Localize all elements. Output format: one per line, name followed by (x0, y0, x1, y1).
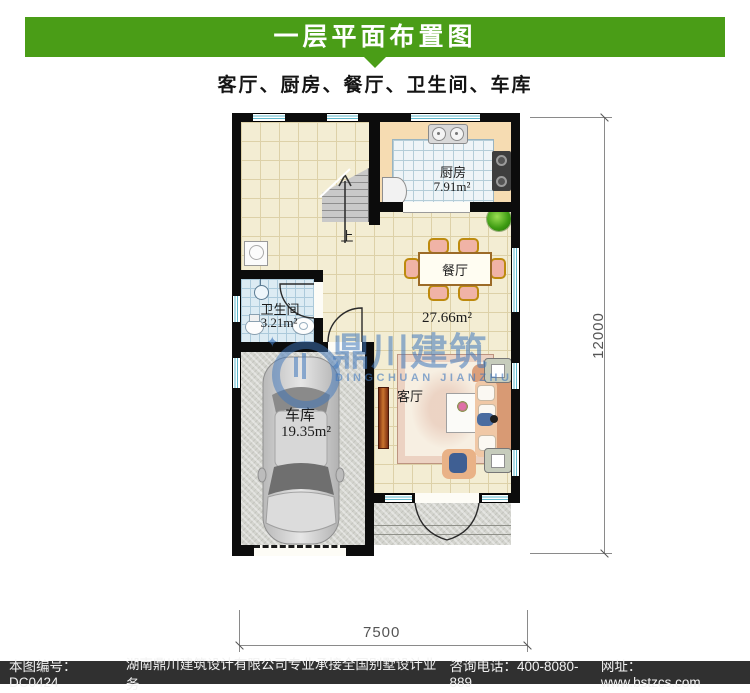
garage-area-label: 19.35m² (281, 424, 331, 441)
stairs-up-label: 上 (340, 226, 353, 245)
door-swing-arcs (232, 113, 520, 556)
footer-bar: 本图编号：DC0424 湖南鼎川建筑设计有限公司专业承接全国别墅设计业务 咨询电… (0, 661, 750, 684)
open-area-label: 27.66m² (422, 310, 472, 327)
footer-website: 网址：www.bstzcs.com (601, 655, 741, 690)
dim-extension-line (530, 553, 612, 554)
header-pointer-triangle (364, 57, 386, 68)
page-title: 一层平面布置图 (25, 17, 725, 57)
page: { "colors": { "header_green": "#4a9d17",… (0, 0, 750, 684)
room-list-subtitle: 客厅、厨房、餐厅、卫生间、车库 (0, 70, 750, 97)
footer-company: 湖南鼎川建筑设计有限公司专业承接全国别墅设计业务 (126, 653, 450, 693)
footer-sheet-no: 本图编号：DC0424 (9, 655, 126, 690)
living-room-label: 客厅 (397, 386, 423, 405)
kitchen-area-label: 7.91m² (434, 179, 471, 195)
dim-line-width (239, 645, 528, 646)
dim-extension-line (530, 117, 612, 118)
header-bar: 一层平面布置图 (25, 17, 725, 57)
footer-phone: 咨询电话：400-8080-889 (450, 655, 601, 690)
floor-plan: 餐厅 (232, 113, 520, 556)
dim-width-label: 7500 (363, 624, 400, 641)
dim-height-label: 12000 (590, 312, 607, 359)
bathroom-area-label: 3.21m² (261, 315, 298, 331)
garage-label: 车库 (285, 404, 315, 425)
